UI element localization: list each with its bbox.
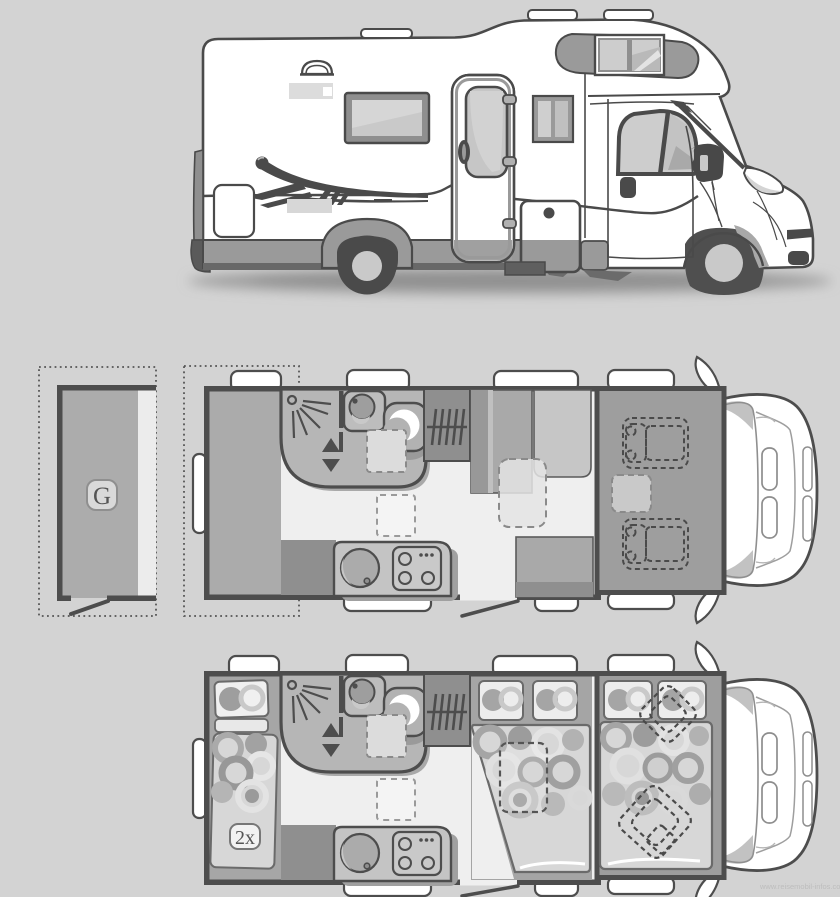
svg-text:G: G — [93, 483, 111, 510]
svg-text:www.reisemobil-infos.com: www.reisemobil-infos.com — [759, 882, 840, 891]
svg-text:2x: 2x — [235, 827, 255, 849]
